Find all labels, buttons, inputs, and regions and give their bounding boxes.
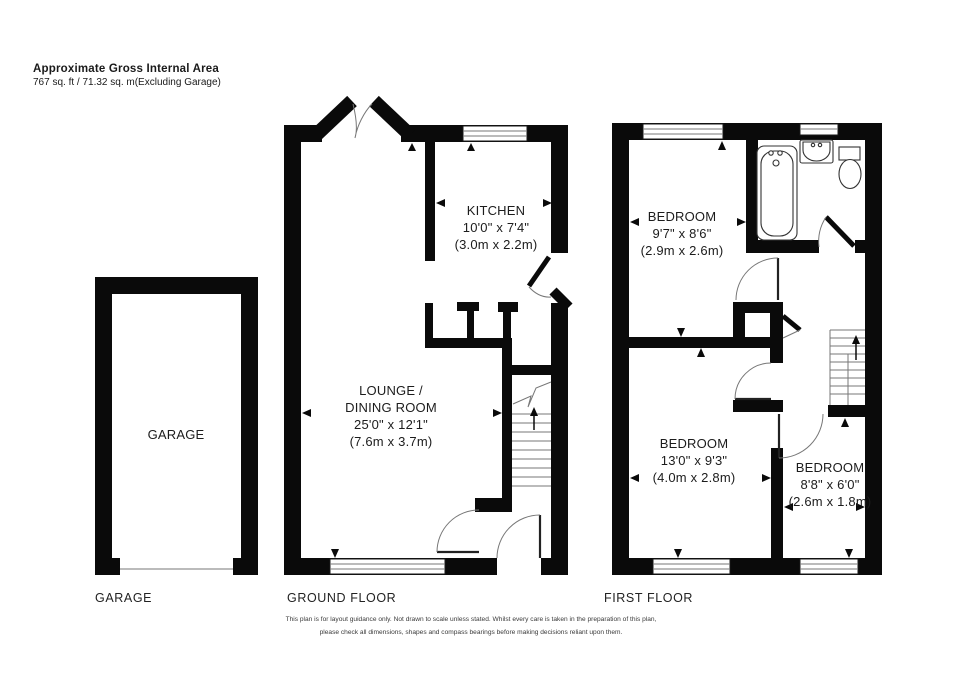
bath-icon [757,146,797,240]
bay-wall-right [374,101,410,135]
stairs-up-arrow-first [852,335,860,360]
floorplan-page: Approximate Gross Internal Area 767 sq. … [0,0,980,692]
stairs-bottom-wall [828,405,882,417]
kitchen-label: KITCHEN 10'0" x 7'4" (3.0m x 2.2m) [455,203,538,252]
lounge-name-2: DINING ROOM [345,400,437,415]
bedroom3-name: BEDROOM [796,460,865,475]
bedroom1-bottom-wall [629,337,777,348]
bay-curtain-squiggle [353,104,372,138]
bedroom3-window [800,559,858,574]
bathroom-bottom-wall [746,240,819,253]
bedroom2-label: BEDROOM 13'0" x 9'3" (4.0m x 2.8m) [653,436,736,485]
floorplan-drawing: GARAGE [0,0,980,692]
bedroom1-metric: (2.9m x 2.6m) [641,243,724,258]
garage-room-label: GARAGE [148,427,205,442]
disclaimer-line-1: This plan is for layout guidance only. N… [160,614,782,627]
first-floor-label: FIRST FLOOR [604,591,693,605]
bedroom2-bedroom3-wall [771,448,783,558]
bedroom3-label: BEDROOM 8'8" x 6'0" (2.6m x 1.8m) [789,460,872,509]
bedroom2-metric: (4.0m x 2.8m) [653,470,736,485]
bathroom-divider-wall [746,140,758,243]
bedroom1-window [643,124,723,139]
staircase-ground [512,382,551,486]
ground-floor-plan: KITCHEN 10'0" x 7'4" (3.0m x 2.2m) LOUNG… [284,101,569,576]
kitchen-door [529,253,569,307]
landing-cupboard-door [783,316,800,338]
hall-wall [502,348,512,498]
bedroom1-name: BEDROOM [648,209,717,224]
staircase-first [830,330,865,405]
kitchen-window [463,126,527,141]
front-door [497,515,541,576]
bay-wall-left [316,101,352,135]
bedroom3-metric: (2.6m x 1.8m) [789,494,872,509]
garage-walls [95,277,258,575]
disclaimer-line-2: please check all dimensions, shapes and … [160,627,782,640]
hall-lounge-door [437,510,479,552]
landing-cupboard-walls [733,302,783,363]
kitchen-metric: (3.0m x 2.2m) [455,237,538,252]
toilet-icon [839,147,861,189]
bedroom3-door [779,414,823,458]
kitchen-imperial: 10'0" x 7'4" [463,220,530,235]
bathroom-window [800,124,838,135]
lounge-imperial: 25'0" x 12'1" [354,417,428,432]
bedroom2-door [735,363,771,399]
bedroom1-imperial: 9'7" x 8'6" [652,226,711,241]
bedroom2-corner-wall [733,400,783,412]
lounge-name-1: LOUNGE / [359,383,423,398]
stairs-top-wall [512,365,568,375]
first-floor-plan: BEDROOM 9'7" x 8'6" (2.9m x 2.6m) BEDROO… [612,123,882,575]
bedroom3-imperial: 8'8" x 6'0" [800,477,859,492]
bedroom2-window [653,559,730,574]
ground-floor-label: GROUND FLOOR [287,591,396,605]
bedroom1-door [736,258,778,300]
lounge-label: LOUNGE / DINING ROOM 25'0" x 12'1" (7.6m… [345,383,437,449]
lounge-metric: (7.6m x 3.7m) [350,434,433,449]
cupboard-walls [425,302,518,348]
bathroom-door [819,217,854,247]
bedroom2-imperial: 13'0" x 9'3" [661,453,728,468]
garage-plan: GARAGE [95,277,258,575]
stairs-up-arrow [530,407,538,430]
bathroom-bottom-stub [855,240,882,253]
disclaimer-text: This plan is for layout guidance only. N… [160,614,782,640]
kitchen-name: KITCHEN [467,203,525,218]
hall-stub-wall [475,498,512,512]
kitchen-divider-wall [425,142,435,261]
garage-floor-label: GARAGE [95,591,152,605]
bedroom2-name: BEDROOM [660,436,729,451]
lounge-window [330,559,445,574]
sink-icon [800,140,833,163]
bedroom1-label: BEDROOM 9'7" x 8'6" (2.9m x 2.6m) [641,209,724,258]
